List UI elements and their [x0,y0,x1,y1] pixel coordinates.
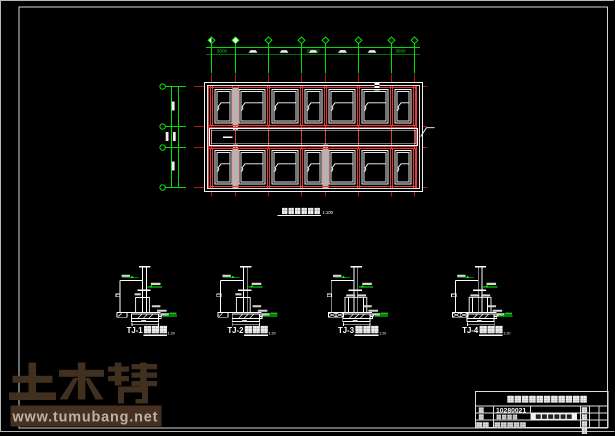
svg-text:TJ-3: TJ-3 [338,326,355,335]
svg-text:TJ-1: TJ-1 [127,326,144,335]
svg-text:1:20: 1:20 [269,332,276,336]
svg-text:3000: 3000 [217,48,228,53]
svg-text:TJ-4: TJ-4 [462,326,479,335]
svg-text:1:20: 1:20 [379,332,386,336]
svg-text:1:20: 1:20 [503,332,510,336]
svg-text:3000: 3000 [395,48,406,53]
svg-text:1:100: 1:100 [323,210,334,215]
svg-text:10280021: 10280021 [496,408,526,415]
svg-text:TJ-2: TJ-2 [227,326,244,335]
svg-text:www.tumubang.net: www.tumubang.net [12,410,159,426]
svg-text:1:20: 1:20 [168,332,175,336]
